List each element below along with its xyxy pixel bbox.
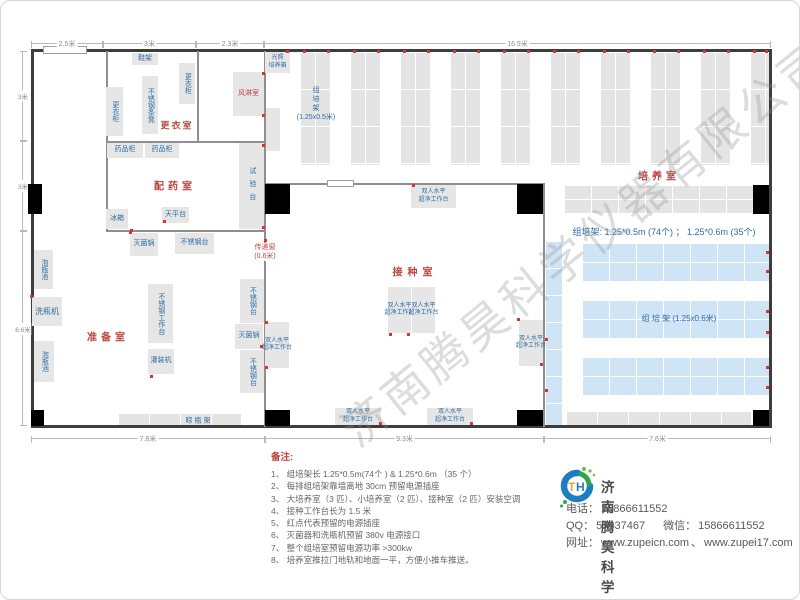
equipment-label: 双人水平超净工作台 (343, 409, 373, 424)
notes-heading: 备注: (271, 449, 520, 463)
dimension-label: 6.6米 (15, 323, 31, 335)
wechat-label: 微信： (663, 520, 696, 532)
power-outlet-dot (766, 366, 769, 369)
equipment-box: 灭菌锅 (130, 233, 158, 256)
wechat-value: 15866611552 (698, 520, 764, 532)
equipment-box: 双人水平超净工作台 (411, 185, 456, 208)
equipment-label: 试验台 (247, 167, 256, 206)
equipment-label: 洗瓶机 (35, 307, 59, 317)
equipment-label: 灭菌锅 (239, 332, 260, 341)
equipment-label: 双人水平超净工作台 (262, 338, 292, 353)
power-outlet-dot (753, 50, 756, 53)
power-outlet-dot (327, 50, 330, 53)
power-outlet-dot (265, 366, 268, 369)
dimension-label: 7.6米 (647, 434, 668, 444)
power-outlet-dot (353, 50, 356, 53)
equipment-box: 灌装机 (148, 349, 174, 374)
equipment-label: 更衣柜 (110, 101, 119, 122)
dimension-label: 3米 (18, 180, 28, 192)
qq-label: QQ： (566, 520, 594, 532)
equipment-label: 鞋架 (138, 55, 152, 64)
culture-rack (546, 242, 562, 427)
dimension-label: 16.9米 (505, 39, 530, 49)
note-item: 4、 接种工作台长为 1.5 米 (271, 505, 520, 517)
equipment-label: 泡瓶池 (39, 259, 48, 280)
equipment-box: 不锈钢台 (175, 233, 214, 254)
svg-text:H: H (576, 480, 585, 494)
power-outlet-dot (517, 318, 520, 321)
web-url-2: www.zupei17.com (704, 537, 793, 549)
equipment-box: 药品柜 (107, 143, 143, 158)
equipment-box: 更衣柜 (179, 63, 195, 104)
power-outlet-dot (150, 375, 153, 378)
plan-annotation: 晾 瓶 架 (186, 416, 211, 425)
power-outlet-dot (129, 231, 132, 234)
room-label: 培养室 (638, 168, 680, 183)
power-outlet-dot (703, 50, 706, 53)
dimension: 2.3米 (196, 43, 264, 44)
web-label: 网址： (566, 537, 599, 549)
note-item: 1、 组培架长 1.25*0.5m(74个 ) & 1.25*0.6m （35 … (271, 468, 520, 480)
dimension: 6.6米 (22, 231, 23, 426)
dimension-label: 7.8米 (138, 434, 159, 444)
room-label: 更衣室 (160, 119, 193, 132)
qq-value: 57437467 (596, 520, 645, 532)
culture-rack (583, 244, 769, 281)
column (31, 410, 44, 426)
power-outlet-dot (262, 114, 265, 117)
culture-rack (351, 53, 381, 165)
wall (31, 425, 772, 428)
equipment-label: 灌装机 (151, 357, 172, 366)
power-outlet-dot (389, 333, 392, 336)
power-outlet-dot (470, 422, 473, 425)
equipment-label: 药品柜 (115, 146, 136, 155)
column (753, 185, 769, 214)
plan-annotation: 组培架: 1.25*0.5m (74个) ； 1.25*0.6m (35个) (572, 227, 755, 239)
power-outlet-dot (262, 72, 265, 75)
culture-rack (551, 53, 581, 165)
power-outlet-dot (766, 310, 769, 313)
floor-plan-canvas: 鞋架更衣柜不锈钢条凳更衣柜风淋室光照培养箱药品柜药品柜试验台冰箱天平台灭菌锅不锈… (0, 0, 800, 600)
note-item: 5、 红点代表预留的电源插座 (271, 517, 520, 529)
equipment-box: 双人水平超净工作台 (265, 322, 289, 368)
dimension: 9.3米 (265, 438, 544, 439)
equipment-label: 光照培养箱 (268, 55, 286, 70)
power-outlet-dot (603, 50, 606, 53)
column (753, 410, 769, 426)
culture-rack (565, 186, 753, 214)
power-outlet-dot (262, 144, 265, 147)
equipment-label: 双人水平超净工作台 (435, 409, 465, 424)
culture-rack (751, 53, 771, 165)
equipment-box: 双人水平超净工作台 (412, 287, 435, 333)
room-label: 配药室 (154, 178, 196, 193)
culture-rack (583, 358, 769, 396)
equipment-box: 冰箱 (106, 209, 128, 229)
power-outlet-dot (727, 50, 730, 53)
equipment-label: 不锈钢台 (248, 287, 257, 315)
power-outlet-dot (577, 50, 580, 53)
equipment-label: 不锈钢工作台 (156, 293, 165, 335)
equipment-box: 双人水平超净工作台 (427, 408, 473, 425)
equipment-box: 不锈钢条凳 (142, 76, 158, 134)
dimension: 16.9米 (264, 43, 771, 44)
power-outlet-dot (545, 389, 548, 392)
equipment-box: 双人水平超净工作台 (335, 408, 381, 425)
equipment-label: 双人水平超净工作台 (418, 189, 448, 204)
wall (264, 183, 545, 185)
power-outlet-dot (403, 50, 406, 53)
dimension: 3米 (103, 43, 196, 44)
equipment-label: 不锈钢台 (248, 358, 257, 386)
window (327, 180, 354, 187)
note-item: 7、 整个组培室预留电源功率 >300kw (271, 542, 520, 554)
equipment-label: 双人水平超净工作台 (516, 336, 546, 351)
web-url-1: www.zupeicn.com (601, 537, 689, 549)
equipment-label: 天平台 (165, 211, 186, 220)
power-outlet-dot (265, 321, 268, 324)
equipment-label: 药品柜 (152, 146, 173, 155)
equipment-box: 光照培养箱 (265, 52, 290, 73)
power-outlet-dot (477, 50, 480, 53)
equipment-label: 双人水平超净工作台 (409, 303, 439, 318)
equipment-box: 不锈钢台 (240, 279, 264, 323)
power-outlet-dot (163, 220, 166, 223)
power-outlet-dot (286, 50, 289, 53)
column (517, 184, 543, 214)
power-outlet-dot (412, 184, 415, 187)
power-outlet-dot (407, 333, 410, 336)
plan-annotation: 传递窗 (0.6米) (254, 243, 275, 261)
power-outlet-dot (627, 50, 630, 53)
qq-wechat-line: QQ：57437467微信：15866611552 (566, 517, 767, 533)
dimension-label: 2.5米 (57, 39, 78, 49)
power-outlet-dot (260, 345, 263, 348)
culture-rack (401, 53, 431, 165)
notes-section: 备注: 1、 组培架长 1.25*0.5m(74个 ) & 1.25*0.6m … (271, 449, 520, 566)
dimension-label: 2.3米 (220, 39, 241, 49)
plan-annotation: 组 培 架 (1.25x0.6米) (642, 314, 717, 324)
culture-rack (451, 53, 481, 165)
equipment-box: 天平台 (162, 207, 189, 223)
note-item: 3、 大培养室（3 匹）、小培养室（2 匹）、接种室（2 匹）安装空调 (271, 493, 520, 505)
notes-list: 1、 组培架长 1.25*0.5m(74个 ) & 1.25*0.6m （35 … (271, 468, 520, 566)
power-outlet-dot (377, 50, 380, 53)
power-outlet-dot (303, 50, 306, 53)
equipment-label: 灭菌锅 (134, 240, 155, 249)
equipment-box: 灭菌锅 (235, 324, 263, 349)
equipment-box: 泡瓶池 (34, 341, 54, 382)
power-outlet-dot (264, 239, 267, 242)
column (265, 410, 290, 426)
column (265, 184, 290, 214)
power-outlet-dot (427, 50, 430, 53)
phone-value: 15866611552 (601, 503, 667, 515)
column (517, 410, 543, 426)
dimension: 3米 (22, 51, 23, 141)
note-item: 6、 灭菌器和洗瓶机预留 380v 电源接口 (271, 529, 520, 541)
culture-rack (501, 53, 531, 165)
dimension-label: 3米 (142, 39, 157, 49)
culture-rack (651, 53, 681, 165)
power-outlet-dot (262, 226, 265, 229)
note-item: 2、 每排组培架靠墙离地 30cm 预留电源插座 (271, 480, 520, 492)
equipment-box: 风淋室 (233, 72, 264, 116)
equipment-box (266, 108, 280, 151)
power-outlet-dot (677, 50, 680, 53)
power-outlet-dot (653, 50, 656, 53)
power-outlet-dot (503, 50, 506, 53)
phone-line: 电话：15866611552 (566, 500, 669, 516)
equipment-label: 泡瓶池 (40, 351, 49, 372)
equipment-box: 鞋架 (132, 53, 158, 65)
power-outlet-dot (379, 422, 382, 425)
power-outlet-dot (765, 50, 768, 53)
power-outlet-dot (766, 331, 769, 334)
equipment-label: 不锈钢台 (181, 239, 209, 248)
equipment-label: 冰箱 (110, 215, 124, 224)
power-outlet-dot (540, 363, 543, 366)
phone-label: 电话： (566, 503, 599, 515)
equipment-box: 药品柜 (145, 143, 179, 158)
dimension-label: 3米 (18, 90, 28, 102)
website-line: 网址：www.zupeicn.com、www.zupei17.com (566, 534, 795, 550)
wall (31, 49, 772, 52)
equipment-label: 更衣柜 (183, 73, 192, 94)
dimension: 2.5米 (31, 43, 103, 44)
note-item: 8、 培养室推拉门地轨和地面一平，方便小推车推送。 (271, 554, 520, 566)
plan-annotation: 组 培 架 (1.25x0.5米) (297, 86, 336, 122)
web-separator: 、 (691, 537, 702, 549)
equipment-box: 试验台 (239, 143, 264, 229)
culture-rack (567, 412, 751, 426)
room-label: 接种室 (393, 264, 438, 279)
room-label: 风淋室 (238, 90, 259, 99)
culture-rack (701, 53, 731, 165)
equipment-label: 不锈钢条凳 (146, 88, 155, 123)
culture-rack (601, 53, 631, 165)
wall (769, 49, 772, 428)
column (28, 184, 42, 214)
power-outlet-dot (553, 50, 556, 53)
power-outlet-dot (30, 295, 33, 298)
dimension: 3米 (22, 141, 23, 231)
equipment-box: 不锈钢工作台 (148, 284, 173, 343)
svg-text:T: T (568, 480, 576, 494)
equipment-box: 泡瓶池 (34, 250, 53, 289)
equipment-box: 不锈钢台 (240, 350, 264, 393)
power-outlet-dot (766, 386, 769, 389)
power-outlet-dot (527, 50, 530, 53)
wall (197, 51, 199, 141)
equipment-box: 洗瓶机 (32, 297, 62, 326)
dimension: 7.6米 (544, 438, 771, 439)
room-label: 准备室 (87, 329, 129, 344)
equipment-box: 双人水平超净工作台 (519, 320, 543, 366)
dimension: 7.8米 (31, 438, 265, 439)
power-outlet-dot (453, 50, 456, 53)
power-outlet-dot (766, 251, 769, 254)
dimension-label: 9.3米 (394, 434, 415, 444)
equipment-box: 更衣柜 (106, 87, 123, 136)
power-outlet-dot (766, 270, 769, 273)
power-outlet-dot (545, 338, 548, 341)
